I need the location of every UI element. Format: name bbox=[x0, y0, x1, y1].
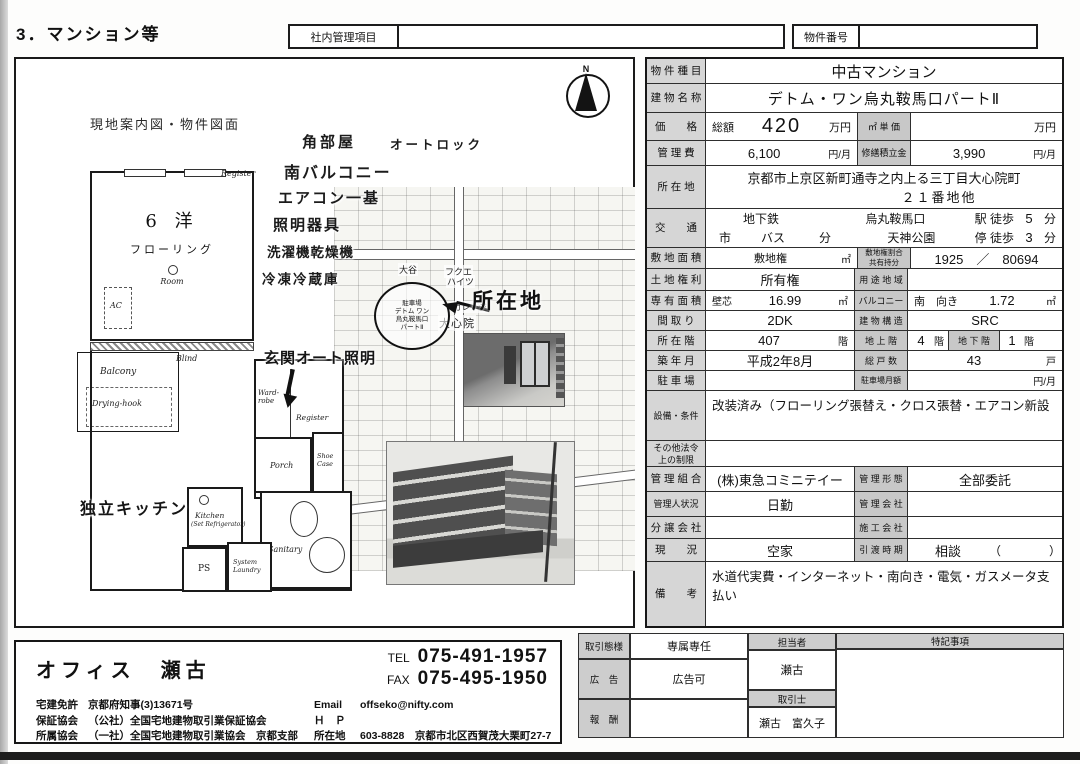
map-circle-parking: 駐車場 bbox=[402, 300, 422, 308]
staff-name: 瀬古 bbox=[748, 650, 836, 690]
feature-lighting: 照明器具 bbox=[273, 214, 341, 235]
repair-fund-unit: 円/月 bbox=[1027, 146, 1062, 161]
stove-icon bbox=[199, 495, 209, 505]
row-label: 駐 車 場 bbox=[647, 371, 706, 390]
current-status: 空家 bbox=[706, 539, 854, 561]
total-units-unit: 戸 bbox=[1040, 353, 1062, 368]
below-ground-label: 地 下 階 bbox=[948, 331, 1000, 350]
map-label-otani: 大谷 bbox=[398, 263, 418, 276]
floorplan-outer-wall-left bbox=[90, 351, 92, 591]
guarantee-assoc: （公社）全国宅地建物取引業保証協会 bbox=[88, 715, 267, 727]
ac-unit-box: AC bbox=[104, 287, 132, 329]
land-right: 所有権 bbox=[706, 269, 854, 290]
ac-label: AC bbox=[110, 301, 122, 310]
license-number: 京都府知事(3)13671号 bbox=[88, 699, 193, 711]
interior-window-small bbox=[504, 346, 516, 384]
map-label-fukue-2: ハイツ bbox=[446, 275, 475, 288]
row-label: 所 在 階 bbox=[647, 331, 706, 350]
sqm-price-label: ㎡ 単 価 bbox=[857, 113, 911, 140]
table-row: 分 譲 会 社 施 工 会 社 bbox=[647, 517, 1062, 539]
row-label: 管 理 組 合 bbox=[647, 467, 706, 491]
porch-box: Porch bbox=[254, 437, 312, 493]
balcony-area: 1.72 bbox=[964, 293, 1040, 308]
map-circle-line-1: デトム ワン bbox=[395, 308, 429, 316]
row-label-line-2: 上の制限 bbox=[658, 454, 694, 466]
management-union: (株)東急コミニテイー bbox=[706, 467, 854, 491]
kitchen-sub-label: (Set Refrigerator) bbox=[191, 521, 245, 528]
room-floor-type: フローリング bbox=[92, 241, 252, 257]
feature-autolock: オートロック bbox=[390, 134, 483, 153]
sanitary-room: Sanitary bbox=[260, 491, 352, 589]
remarks-header: 特記事項 bbox=[836, 633, 1064, 649]
repair-fund-label: 修繕積立金 bbox=[857, 141, 911, 165]
license-block: 宅建免許京都府知事(3)13671号 保証協会（公社）全国宅地建物取引業保証協会… bbox=[36, 698, 298, 745]
access-mode: 地下鉄 bbox=[706, 210, 816, 227]
reward bbox=[630, 699, 748, 738]
table-row: 価 格 総額 420 万円 ㎡ 単 価 万円 bbox=[647, 113, 1062, 141]
table-row: 敷 地 面 積 敷地権 ㎡ 敷地権割合 共有持分 1925 ／ 80694 bbox=[647, 248, 1062, 269]
repair-fund: 3,990 bbox=[911, 146, 1027, 161]
balcony-label-cell: バルコニー bbox=[854, 291, 908, 310]
internal-management-box: 社内管理項目 bbox=[288, 24, 785, 49]
bus-label: バス bbox=[744, 229, 802, 246]
sqm-price-unit: 万円 bbox=[1028, 119, 1062, 135]
property-number-label: 物件番号 bbox=[794, 26, 860, 47]
builder-company bbox=[908, 517, 1062, 538]
table-row: 備 考 水道代実費・インターネット・南向き・電気・ガスメータ支払い bbox=[647, 562, 1062, 626]
parking bbox=[706, 371, 854, 390]
table-row: 建 物 名 称 デトム・ワン烏丸鞍馬口パートⅡ bbox=[647, 84, 1062, 113]
legal-restrictions bbox=[706, 441, 1062, 466]
handover-label: 引 渡 時 期 bbox=[854, 539, 908, 561]
floor-unit: 階 bbox=[832, 333, 854, 348]
deal-type: 専属専任 bbox=[630, 633, 748, 659]
kitchen-box: Kitchen (Set Refrigerator) bbox=[187, 487, 243, 547]
feature-south-balcony: 南バルコニー bbox=[284, 159, 392, 183]
layout-plan: 2DK bbox=[706, 311, 854, 330]
compass-icon: N bbox=[563, 64, 609, 122]
reward-label: 報 酬 bbox=[578, 699, 630, 738]
toilet-icon bbox=[290, 501, 318, 537]
management-co bbox=[908, 492, 1062, 516]
room-symbol-icon bbox=[168, 265, 178, 275]
guarantee-label: 保証協会 bbox=[36, 715, 78, 727]
table-row: 管 理 組 合 (株)東急コミニテイー 管 理 形 態 全部委託 bbox=[647, 467, 1062, 492]
kitchen-label: Kitchen bbox=[195, 511, 224, 520]
handover: 相談 bbox=[908, 541, 988, 560]
bus-walk-min: 3 bbox=[1014, 230, 1044, 245]
tel-label: TEL bbox=[388, 651, 410, 665]
property-sheet: 3．マンション等 社内管理項目 物件番号 大谷 フクエ ハイツ ガレージ 大心院… bbox=[0, 0, 1080, 764]
zoning-label: 用 途 地 域 bbox=[854, 269, 908, 290]
ad-label: 広 告 bbox=[578, 659, 630, 699]
page-title: 3．マンション等 bbox=[16, 20, 160, 45]
register-entrance-label: Register bbox=[296, 413, 328, 422]
access-min-unit: 分 bbox=[1044, 210, 1062, 227]
management-fee: 6,100 bbox=[706, 146, 822, 161]
map-location-callout: 所在地 bbox=[472, 285, 544, 315]
assoc-label: 所属協会 bbox=[36, 730, 78, 742]
balcony-unit: ㎡ bbox=[1040, 293, 1062, 308]
map-target-circle: 駐車場 デトム ワン 烏丸鞍馬口 パートⅡ bbox=[374, 282, 450, 350]
bus-walk-label: 停 徒歩 bbox=[975, 229, 1014, 246]
management-co-label: 管 理 会 社 bbox=[854, 492, 908, 516]
row-label: 設備・条件 bbox=[647, 391, 706, 440]
porch-label: Porch bbox=[270, 461, 293, 470]
area-unit: ㎡ bbox=[832, 293, 854, 308]
internal-management-label: 社内管理項目 bbox=[290, 26, 399, 47]
scan-edge-bottom bbox=[0, 752, 1080, 760]
price-total-label: 総額 bbox=[706, 119, 740, 135]
row-label-line-1: その他法令 bbox=[653, 442, 698, 454]
table-row: 現 況 空家 引 渡 時 期 相談 （ ） bbox=[647, 539, 1062, 562]
shoe-case-label: Shoe Case bbox=[317, 452, 343, 468]
shoe-case-box: Shoe Case bbox=[312, 432, 344, 493]
email-value: offseko@nifty.com bbox=[360, 699, 453, 711]
laundry-label: System Laundry bbox=[233, 558, 271, 574]
table-row: 所 在 階 407 階 地 上 階 4 階 地 下 階 1 階 bbox=[647, 331, 1062, 351]
compass-needle bbox=[575, 73, 597, 111]
site-ratio: 1925 ／ 80694 bbox=[911, 248, 1062, 268]
office-name: オフィス 瀬古 bbox=[36, 654, 211, 683]
table-row: 管理人状況 日勤 管 理 会 社 bbox=[647, 492, 1062, 517]
blind-label: Blind bbox=[176, 354, 197, 363]
sanitary-label: Sanitary bbox=[268, 545, 302, 554]
internal-management-value bbox=[399, 26, 783, 47]
access-station: 烏丸鞍馬口 bbox=[816, 210, 975, 227]
room-en-label: Room bbox=[92, 277, 252, 286]
drying-hook-label: Drying-hook bbox=[92, 399, 142, 408]
floorplan-register-top-label: Register bbox=[221, 169, 255, 178]
property-type: 中古マンション bbox=[706, 59, 1062, 83]
map-circle-line-3: パートⅡ bbox=[401, 324, 424, 332]
row-label: 物 件 種 目 bbox=[647, 59, 706, 83]
row-label: 価 格 bbox=[647, 113, 706, 140]
row-label: 建 物 名 称 bbox=[647, 84, 706, 112]
handover-paren: （ ） bbox=[988, 542, 1062, 559]
office-addr-label: 所在地 bbox=[314, 729, 360, 745]
bus-city: 市 bbox=[706, 229, 744, 246]
map-circle-line-2: 烏丸鞍馬口 bbox=[396, 316, 429, 324]
feature-aircon: エアコン一基 bbox=[278, 187, 380, 208]
deal-type-label: 取引態様 bbox=[578, 633, 630, 659]
deal-info-table: 取引態様 専属専任 広 告 広告可 報 酬 担当者 瀬古 取引士 瀬古 富久子 … bbox=[578, 633, 1064, 738]
floorplan-window-icon bbox=[124, 169, 166, 177]
total-units-label: 総 戸 数 bbox=[854, 351, 908, 370]
phone-block: TEL 075-491-1957 FAX 075-495-1950 bbox=[387, 646, 548, 690]
row-label: 専 有 面 積 bbox=[647, 291, 706, 310]
agent-name: 瀬古 富久子 bbox=[748, 707, 836, 738]
floorplan-main-room: 6 洋 フローリング Room AC bbox=[90, 171, 254, 341]
row-label: 間 取 り bbox=[647, 311, 706, 330]
management-fee-unit: 円/月 bbox=[822, 146, 857, 161]
property-number-box: 物件番号 bbox=[792, 24, 1038, 49]
property-detail-table: 物 件 種 目 中古マンション 建 物 名 称 デトム・ワン烏丸鞍馬口パートⅡ … bbox=[645, 57, 1064, 628]
structure-label: 建 物 構 造 bbox=[854, 311, 908, 330]
equipment-conditions: 改装済み（フローリング張替え・クロス張替・エアコン新設 bbox=[706, 391, 1062, 440]
builder-label: 施 工 会 社 bbox=[854, 517, 908, 538]
special-remarks bbox=[836, 649, 1064, 738]
fax-label: FAX bbox=[387, 673, 410, 687]
email-label: Email bbox=[314, 698, 360, 714]
table-row: 管 理 費 6,100 円/月 修繕積立金 3,990 円/月 bbox=[647, 141, 1062, 166]
zoning bbox=[908, 269, 1062, 290]
contact-block: Emailoffseko@nifty.com Ｈ Ｐ 所在地603-8828 京… bbox=[314, 698, 551, 745]
access-walk-min: 5 bbox=[1014, 211, 1044, 226]
bus-min-unit-blank: 分 bbox=[802, 229, 848, 246]
site-right-kind: 敷地権 bbox=[706, 250, 835, 266]
row-label: 管 理 費 bbox=[647, 141, 706, 165]
entrance-arrow-icon bbox=[281, 394, 297, 410]
remarks-text: 水道代実費・インターネット・南向き・電気・ガスメータ支払い bbox=[706, 562, 1062, 626]
built-date: 平成2年8月 bbox=[706, 351, 854, 370]
bus-stop-name: 天神公園 bbox=[848, 229, 975, 246]
laundry-box: System Laundry bbox=[227, 542, 272, 592]
balcony-direction: 南 向き bbox=[908, 293, 964, 309]
area-kind: 壁芯 bbox=[706, 293, 738, 308]
fax-number: 075-495-1950 bbox=[418, 668, 548, 690]
below-ground-unit: 階 bbox=[1024, 333, 1038, 348]
site-ratio-label-2: 共有持分 bbox=[869, 258, 899, 268]
structure: SRC bbox=[908, 311, 1062, 330]
tel-number: 075-491-1957 bbox=[418, 646, 548, 668]
table-row: 土 地 権 利 所有権 用 途 地 域 bbox=[647, 269, 1062, 291]
interior-photo bbox=[464, 334, 564, 406]
ps-label: PS bbox=[198, 564, 210, 574]
row-label: 築 年 月 bbox=[647, 351, 706, 370]
parking-fee-label: 駐車場月額 bbox=[854, 371, 908, 390]
office-addr: 603-8828 京都市北区西賀茂大栗町27-7 bbox=[360, 730, 551, 742]
row-label: 交 通 bbox=[647, 209, 706, 247]
table-row: 築 年 月 平成2年8月 総 戸 数 43 戸 bbox=[647, 351, 1062, 371]
staff-header: 担当者 bbox=[748, 633, 836, 650]
feature-washer-dryer: 洗濯機乾燥機 bbox=[267, 241, 354, 261]
entrance-auto-light-note: 玄関オート照明 bbox=[264, 347, 376, 368]
floor-number: 407 bbox=[706, 333, 832, 348]
above-ground: 4 bbox=[908, 333, 934, 348]
interior-window bbox=[520, 341, 550, 387]
agent-header: 取引士 bbox=[748, 690, 836, 707]
address-line-1: 京都市上京区新町通寺之内上る三丁目大心院町 bbox=[706, 168, 1062, 187]
office-info-box: オフィス 瀬古 TEL 075-491-1957 FAX 075-495-195… bbox=[14, 640, 562, 744]
room-name: 6 洋 bbox=[92, 207, 252, 233]
ps-box: PS bbox=[182, 547, 227, 592]
property-number-value bbox=[860, 26, 1036, 47]
row-label: 所 在 地 bbox=[647, 166, 706, 208]
interior-shelf bbox=[556, 338, 564, 398]
ad-permission: 広告可 bbox=[630, 659, 748, 699]
seller-company bbox=[706, 517, 854, 538]
row-label: 現 況 bbox=[647, 539, 706, 561]
feature-fridge: 冷凍冷蔵庫 bbox=[262, 268, 340, 288]
table-row: 間 取 り 2DK 建 物 構 造 SRC bbox=[647, 311, 1062, 331]
floorplan-wall-hatch bbox=[90, 342, 254, 351]
independent-kitchen-note: 独立キッチン bbox=[80, 495, 188, 519]
table-row: 物 件 種 目 中古マンション bbox=[647, 59, 1062, 84]
table-row: 所 在 地 京都市上京区新町通寺之内上る三丁目大心院町 ２１番地他 bbox=[647, 166, 1062, 209]
building-exterior-photo bbox=[387, 442, 574, 584]
table-row: 駐 車 場 駐車場月額 円/月 bbox=[647, 371, 1062, 391]
management-form-label: 管 理 形 態 bbox=[854, 467, 908, 491]
bathtub-icon bbox=[309, 537, 345, 573]
area-value: 16.99 bbox=[738, 293, 832, 308]
figure-panel: 大谷 フクエ ハイツ ガレージ 大心院 駐車場 デトム ワン 烏丸鞍馬口 パート… bbox=[14, 57, 635, 628]
management-form: 全部委託 bbox=[908, 467, 1062, 491]
table-row: 交 通 地下鉄 烏丸鞍馬口 駅 徒歩 5 分 市 バス 分 天神公園 停 徒歩 … bbox=[647, 209, 1062, 248]
figure-caption: 現地案内図・物件図面 bbox=[90, 114, 240, 133]
building-name: デトム・ワン烏丸鞍馬口パートⅡ bbox=[706, 84, 1062, 112]
manager-status: 日勤 bbox=[706, 492, 854, 516]
row-label: 敷 地 面 積 bbox=[647, 248, 706, 268]
table-row: その他法令 上の制限 bbox=[647, 441, 1062, 467]
total-units: 43 bbox=[908, 353, 1040, 368]
feature-corner-room: 角部屋 bbox=[302, 131, 356, 152]
price-unit: 万円 bbox=[823, 119, 857, 135]
row-label: 分 譲 会 社 bbox=[647, 517, 706, 538]
site-unit: ㎡ bbox=[835, 251, 857, 266]
balcony-area: Balcony Drying-hook bbox=[77, 352, 179, 432]
member-assoc: （一社）全国宅地建物取引業協会 京都支部 bbox=[88, 730, 298, 742]
row-label: 備 考 bbox=[647, 562, 706, 626]
floorplan-window-icon bbox=[184, 169, 226, 177]
row-label: 管理人状況 bbox=[647, 492, 706, 516]
balcony-label: Balcony bbox=[100, 367, 136, 377]
table-row: 専 有 面 積 壁芯 16.99 ㎡ バルコニー 南 向き 1.72 ㎡ bbox=[647, 291, 1062, 311]
bus-min-unit: 分 bbox=[1044, 229, 1062, 246]
site-ratio-label-1: 敷地権割合 bbox=[865, 248, 903, 258]
address-line-2: ２１番地他 bbox=[706, 187, 1062, 206]
below-ground: 1 bbox=[1000, 333, 1024, 348]
license-label: 宅建免許 bbox=[36, 699, 78, 711]
table-row: 設備・条件 改装済み（フローリング張替え・クロス張替・エアコン新設 bbox=[647, 391, 1062, 441]
parking-fee-unit: 円/月 bbox=[1027, 373, 1062, 388]
above-ground-label: 地 上 階 bbox=[854, 331, 908, 350]
row-label: 土 地 権 利 bbox=[647, 269, 706, 290]
map-road-horizontal bbox=[334, 249, 635, 260]
access-walk-label: 駅 徒歩 bbox=[975, 210, 1014, 227]
hp-label: Ｈ Ｐ bbox=[314, 714, 360, 730]
scan-edge-left bbox=[0, 0, 8, 764]
price-value: 420 bbox=[740, 115, 823, 138]
above-ground-unit: 階 bbox=[934, 333, 944, 348]
